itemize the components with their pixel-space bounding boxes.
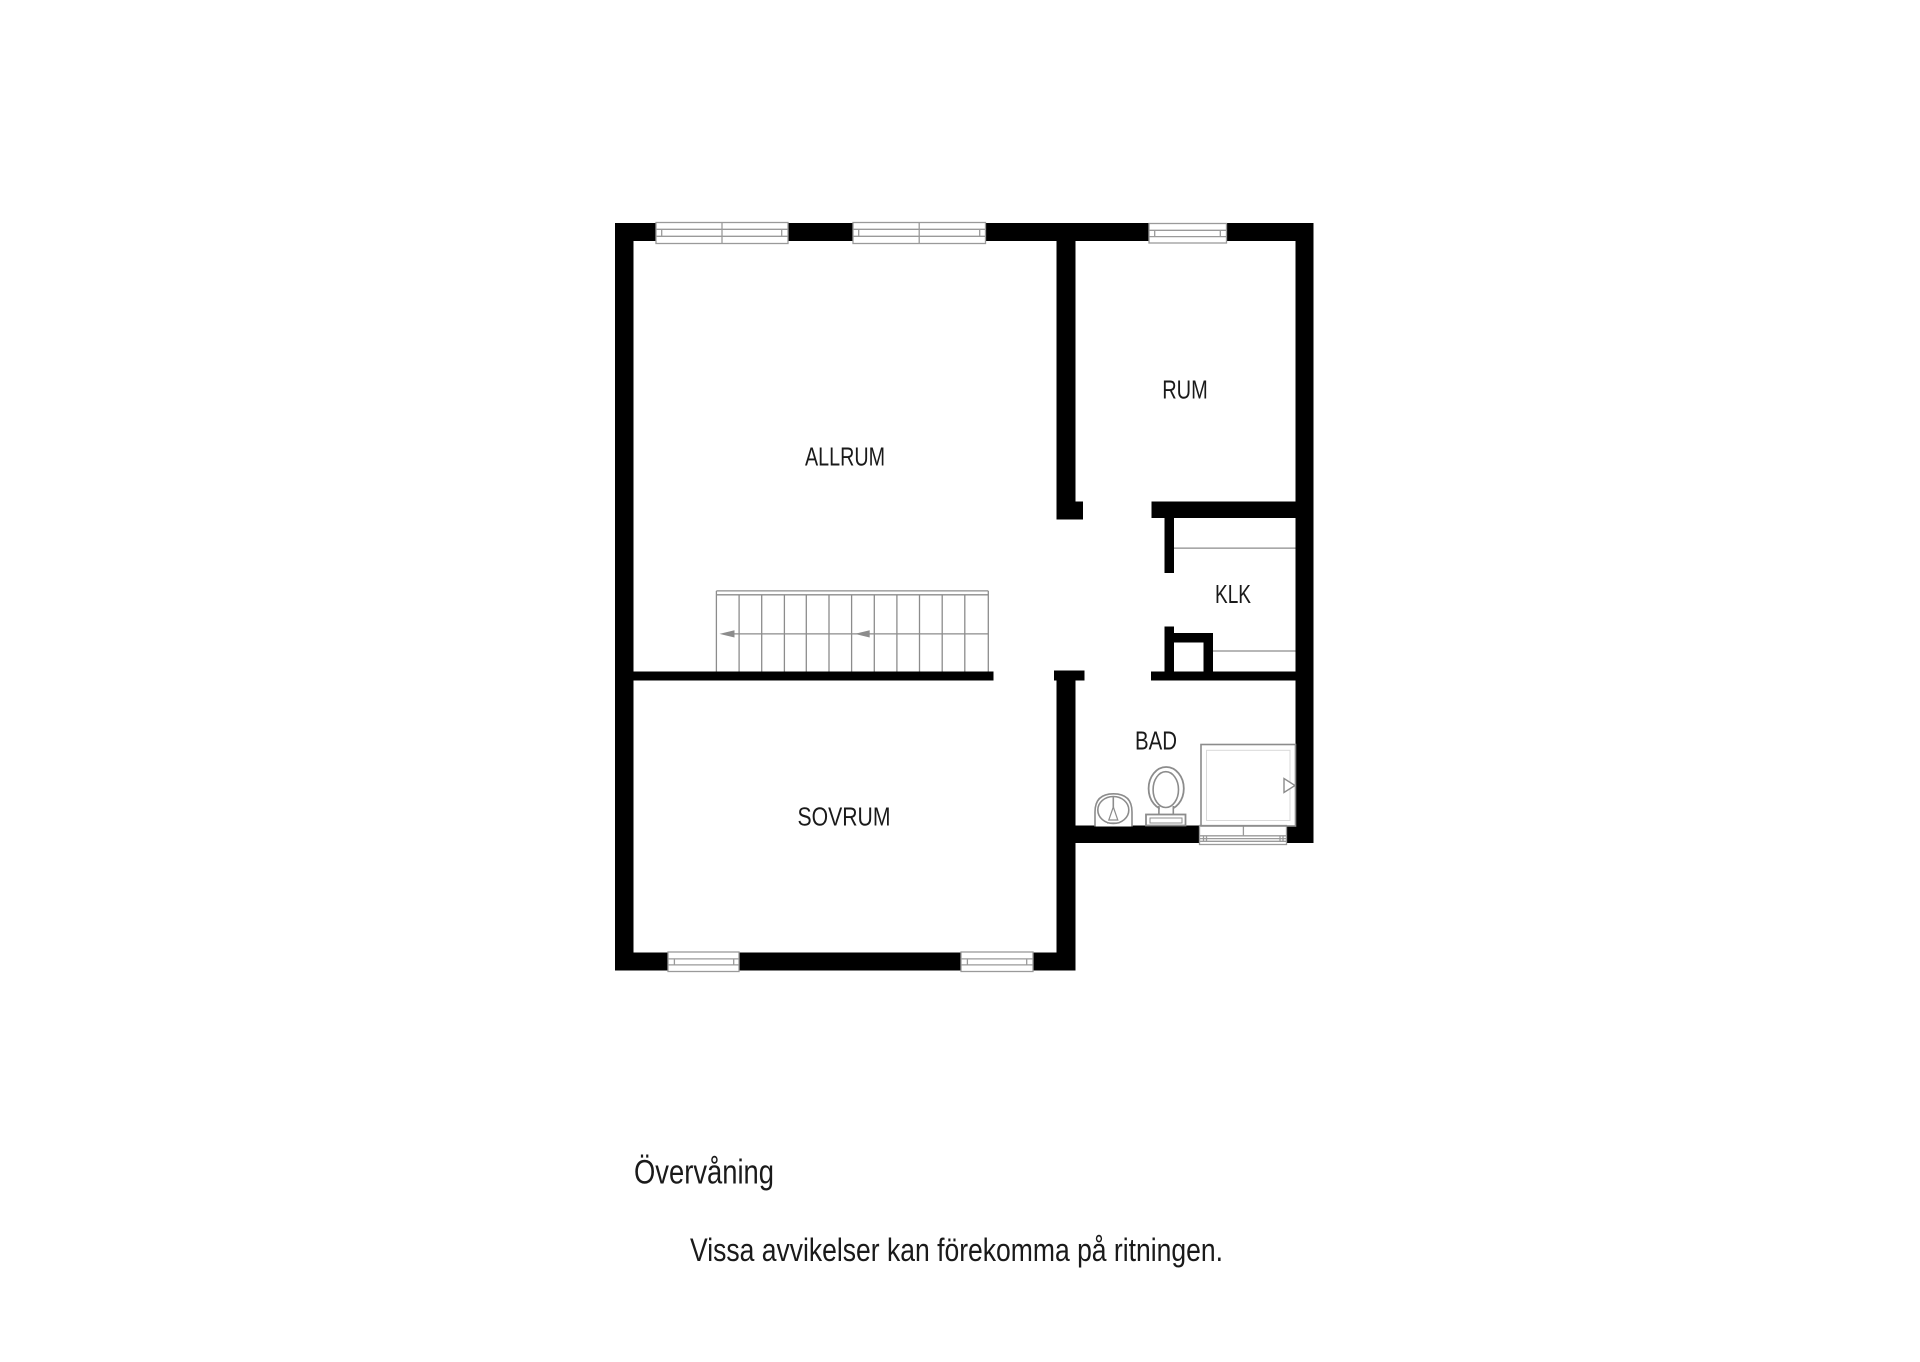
- svg-text:SOVRUM: SOVRUM: [798, 802, 891, 832]
- svg-text:KLK: KLK: [1215, 579, 1251, 609]
- svg-text:Vissa avvikelser kan förekomma: Vissa avvikelser kan förekomma på ritnin…: [690, 1232, 1223, 1268]
- svg-text:Övervåning: Övervåning: [634, 1154, 774, 1192]
- svg-text:BAD: BAD: [1135, 726, 1177, 756]
- svg-text:ALLRUM: ALLRUM: [805, 442, 885, 472]
- svg-text:RUM: RUM: [1162, 375, 1208, 405]
